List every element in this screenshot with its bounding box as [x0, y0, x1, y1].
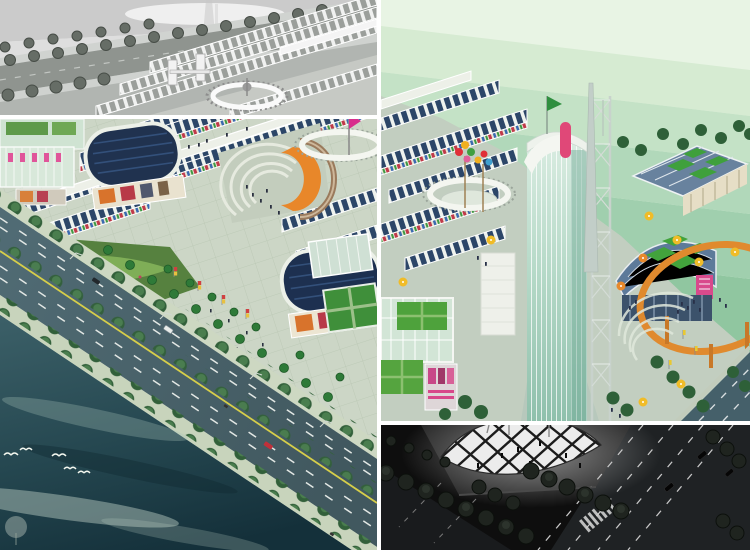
rendering-collage [0, 0, 750, 550]
panel-tower-rendering [381, 0, 750, 421]
panel-grayscale-aerial [0, 0, 377, 115]
oval-hall-west [82, 120, 186, 210]
panel-color-aerial [0, 119, 377, 550]
panel-night-rendering [381, 425, 750, 550]
